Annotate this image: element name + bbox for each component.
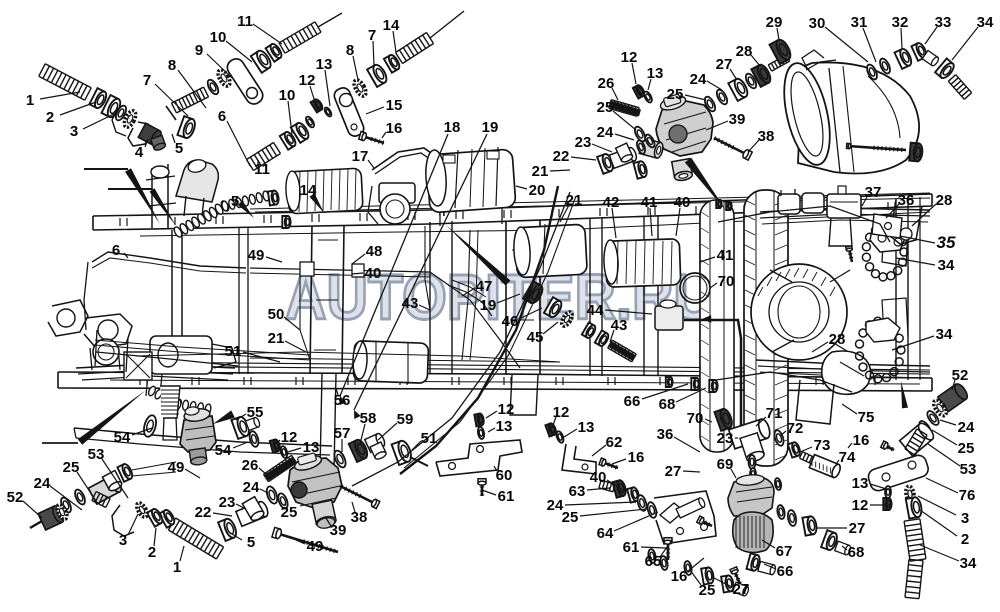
- svg-text:37: 37: [865, 184, 882, 201]
- svg-text:35: 35: [937, 233, 956, 252]
- svg-text:5: 5: [175, 140, 183, 157]
- svg-text:28: 28: [736, 43, 753, 60]
- svg-text:52: 52: [952, 367, 969, 384]
- svg-text:66: 66: [624, 393, 641, 410]
- svg-text:75: 75: [858, 409, 875, 426]
- svg-text:38: 38: [351, 509, 368, 526]
- svg-text:34: 34: [938, 257, 955, 274]
- svg-text:8: 8: [168, 57, 176, 74]
- svg-text:24: 24: [243, 479, 260, 496]
- svg-text:49: 49: [248, 247, 265, 264]
- svg-text:51: 51: [225, 343, 242, 360]
- svg-text:16: 16: [386, 120, 403, 137]
- svg-text:6: 6: [112, 242, 120, 259]
- svg-text:65: 65: [645, 553, 662, 570]
- svg-text:54: 54: [215, 442, 232, 459]
- svg-text:2: 2: [46, 109, 54, 126]
- svg-text:13: 13: [647, 65, 664, 82]
- svg-text:29: 29: [766, 14, 783, 31]
- svg-text:9: 9: [195, 42, 203, 59]
- svg-text:12: 12: [852, 497, 869, 514]
- svg-text:25: 25: [63, 459, 80, 476]
- svg-text:43: 43: [611, 317, 628, 334]
- svg-text:20: 20: [529, 182, 546, 199]
- svg-text:24: 24: [34, 475, 51, 492]
- svg-text:43: 43: [402, 295, 419, 312]
- svg-text:45: 45: [527, 329, 544, 346]
- svg-text:12: 12: [299, 72, 316, 89]
- svg-text:76: 76: [959, 487, 976, 504]
- svg-text:11: 11: [237, 13, 253, 30]
- svg-text:51: 51: [421, 430, 438, 447]
- svg-text:41: 41: [717, 247, 734, 264]
- svg-text:40: 40: [590, 469, 607, 486]
- svg-text:39: 39: [729, 111, 746, 128]
- svg-text:23: 23: [717, 430, 734, 447]
- svg-text:5: 5: [247, 534, 255, 551]
- svg-text:23: 23: [575, 134, 592, 151]
- svg-text:63: 63: [569, 483, 586, 500]
- svg-text:38: 38: [758, 128, 775, 145]
- svg-text:7: 7: [368, 27, 376, 44]
- svg-text:49: 49: [168, 459, 185, 476]
- svg-text:7: 7: [143, 72, 151, 89]
- svg-text:12: 12: [281, 429, 298, 446]
- svg-text:52: 52: [7, 489, 24, 506]
- svg-text:16: 16: [853, 432, 870, 449]
- svg-text:56: 56: [334, 392, 351, 409]
- svg-text:3: 3: [70, 123, 78, 140]
- svg-text:68: 68: [659, 396, 676, 413]
- svg-text:11: 11: [254, 161, 270, 178]
- svg-text:23: 23: [219, 494, 236, 511]
- svg-text:27: 27: [716, 56, 733, 73]
- svg-text:24: 24: [690, 71, 707, 88]
- svg-text:8: 8: [346, 42, 354, 59]
- svg-text:19: 19: [482, 119, 499, 136]
- svg-text:13: 13: [852, 475, 869, 492]
- svg-text:69: 69: [717, 456, 734, 473]
- svg-text:55: 55: [247, 404, 264, 421]
- svg-text:13: 13: [578, 419, 595, 436]
- svg-text:17: 17: [352, 148, 369, 165]
- svg-text:34: 34: [977, 14, 994, 31]
- svg-text:73: 73: [814, 437, 831, 454]
- svg-text:3: 3: [119, 532, 127, 549]
- svg-text:28: 28: [936, 192, 953, 209]
- svg-text:41: 41: [641, 194, 658, 211]
- svg-text:25: 25: [597, 99, 614, 116]
- svg-text:3: 3: [961, 510, 969, 527]
- svg-text:74: 74: [839, 449, 856, 466]
- svg-text:21: 21: [268, 330, 285, 347]
- svg-text:42: 42: [603, 194, 620, 211]
- svg-text:36: 36: [898, 192, 915, 209]
- svg-text:25: 25: [667, 86, 684, 103]
- svg-text:1: 1: [26, 92, 34, 109]
- svg-text:26: 26: [242, 457, 259, 474]
- svg-text:16: 16: [628, 449, 645, 466]
- svg-text:44: 44: [587, 302, 604, 319]
- svg-text:24: 24: [597, 124, 614, 141]
- svg-text:19: 19: [480, 297, 497, 314]
- svg-text:13: 13: [303, 439, 320, 456]
- svg-text:26: 26: [598, 75, 615, 92]
- svg-text:60: 60: [496, 467, 513, 484]
- svg-text:27: 27: [849, 520, 866, 537]
- svg-text:12: 12: [621, 49, 638, 66]
- svg-text:34: 34: [936, 326, 953, 343]
- svg-text:47: 47: [476, 278, 493, 295]
- svg-text:12: 12: [498, 401, 515, 418]
- svg-text:10: 10: [210, 29, 227, 46]
- svg-text:18: 18: [444, 119, 461, 136]
- svg-text:70: 70: [687, 410, 704, 427]
- svg-text:53: 53: [88, 446, 105, 463]
- svg-text:25: 25: [562, 509, 579, 526]
- svg-text:25: 25: [699, 582, 716, 599]
- svg-text:31: 31: [851, 14, 868, 31]
- svg-text:40: 40: [674, 194, 691, 211]
- svg-text:40: 40: [365, 265, 382, 282]
- svg-text:14: 14: [300, 182, 317, 199]
- svg-text:34: 34: [960, 555, 977, 572]
- svg-text:71: 71: [766, 405, 783, 422]
- svg-text:27: 27: [733, 581, 750, 598]
- svg-text:28: 28: [829, 331, 846, 348]
- svg-text:14: 14: [383, 17, 400, 34]
- svg-text:2: 2: [148, 544, 156, 561]
- svg-text:2: 2: [961, 531, 969, 548]
- svg-text:48: 48: [366, 243, 383, 260]
- svg-text:27: 27: [665, 463, 682, 480]
- svg-text:6: 6: [218, 108, 226, 125]
- svg-text:64: 64: [597, 525, 614, 542]
- svg-text:24: 24: [958, 419, 975, 436]
- svg-text:1: 1: [173, 559, 181, 576]
- svg-text:12: 12: [553, 404, 570, 421]
- svg-text:61: 61: [498, 488, 515, 505]
- svg-text:36: 36: [657, 426, 674, 443]
- svg-text:68: 68: [848, 544, 865, 561]
- svg-text:32: 32: [892, 14, 909, 31]
- svg-text:53: 53: [960, 461, 977, 478]
- svg-text:46: 46: [502, 313, 519, 330]
- svg-text:5: 5: [231, 193, 239, 210]
- svg-text:49: 49: [307, 538, 324, 555]
- svg-text:67: 67: [776, 543, 793, 560]
- svg-text:25: 25: [281, 504, 298, 521]
- svg-text:33: 33: [935, 14, 952, 31]
- svg-text:21: 21: [566, 192, 583, 209]
- svg-text:25: 25: [958, 440, 975, 457]
- svg-text:13: 13: [496, 418, 513, 435]
- svg-text:50: 50: [268, 306, 285, 323]
- svg-text:10: 10: [279, 87, 296, 104]
- svg-text:22: 22: [195, 504, 212, 521]
- svg-text:72: 72: [787, 420, 804, 437]
- svg-text:4: 4: [135, 144, 144, 161]
- svg-text:16: 16: [671, 568, 688, 585]
- svg-text:22: 22: [553, 148, 570, 165]
- svg-text:59: 59: [397, 411, 414, 428]
- svg-text:66: 66: [777, 563, 794, 580]
- svg-text:21: 21: [532, 163, 549, 180]
- svg-text:30: 30: [809, 15, 826, 32]
- svg-text:70: 70: [718, 273, 735, 290]
- svg-text:61: 61: [623, 539, 640, 556]
- svg-text:13: 13: [316, 56, 333, 73]
- svg-text:54: 54: [114, 429, 131, 446]
- svg-text:39: 39: [330, 522, 347, 539]
- svg-text:57: 57: [334, 425, 351, 442]
- svg-text:62: 62: [606, 434, 623, 451]
- svg-text:58: 58: [360, 410, 377, 427]
- svg-text:15: 15: [386, 97, 403, 114]
